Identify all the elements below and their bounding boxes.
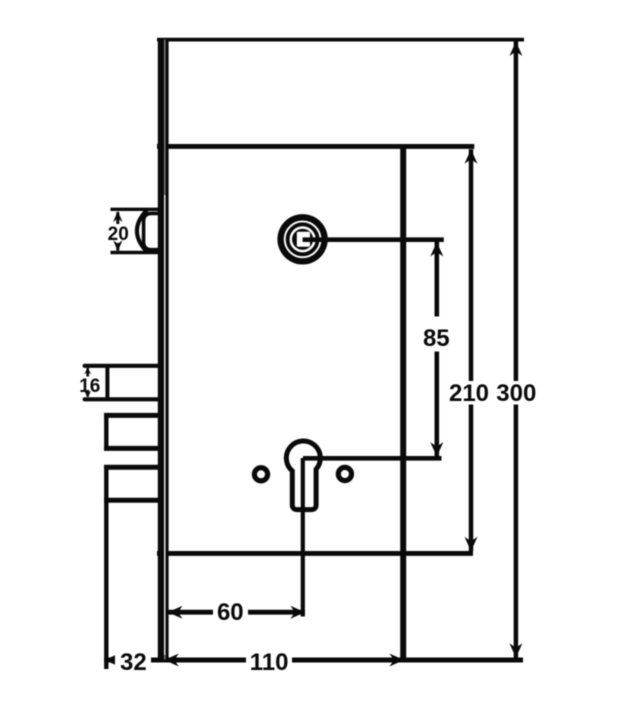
svg-text:32: 32 (120, 649, 147, 676)
svg-text:300: 300 (496, 380, 536, 407)
svg-text:110: 110 (250, 649, 289, 676)
svg-text:85: 85 (423, 325, 450, 352)
svg-text:210: 210 (449, 380, 489, 407)
svg-text:16: 16 (79, 376, 100, 397)
svg-text:20: 20 (108, 224, 129, 245)
svg-text:60: 60 (217, 599, 244, 626)
